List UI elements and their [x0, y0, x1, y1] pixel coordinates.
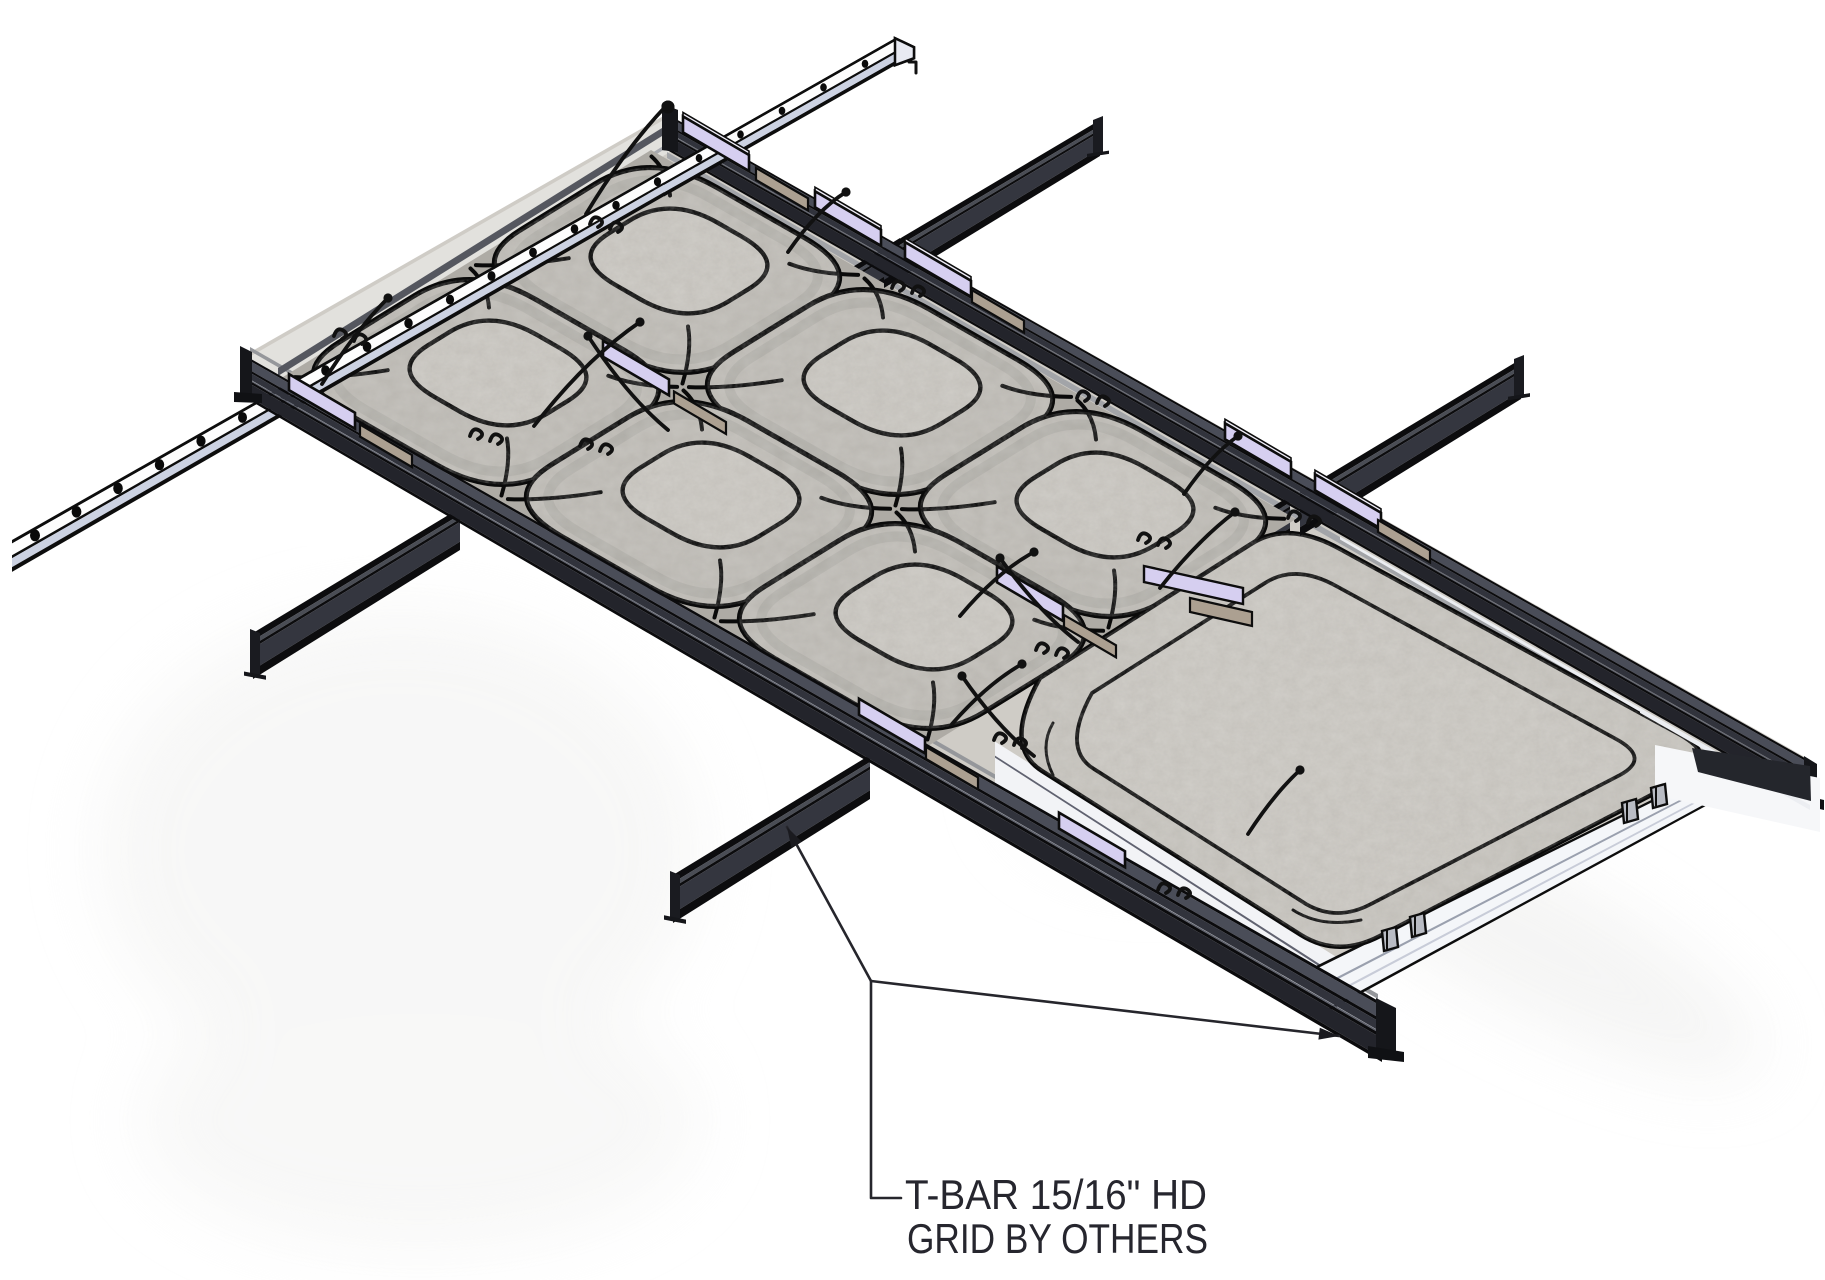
svg-text:T-BAR 15/16" HD: T-BAR 15/16" HD	[905, 1171, 1207, 1218]
svg-text:GRID BY OTHERS: GRID BY OTHERS	[907, 1215, 1208, 1262]
